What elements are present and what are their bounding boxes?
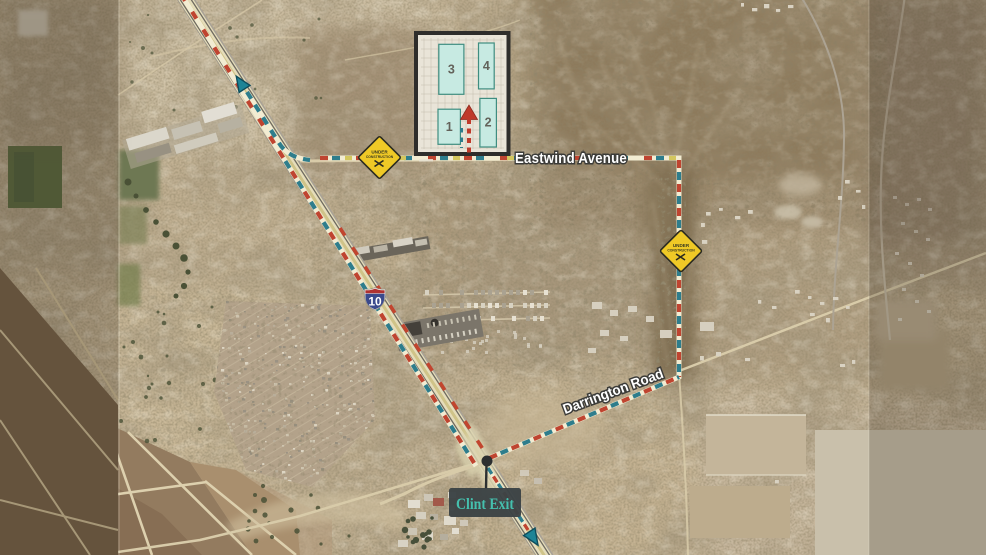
svg-text:UNDER: UNDER: [371, 149, 388, 154]
svg-text:2: 2: [485, 116, 492, 130]
svg-text:CONSTRUCTION: CONSTRUCTION: [667, 249, 695, 253]
svg-text:3: 3: [448, 62, 455, 76]
svg-text:10: 10: [368, 295, 382, 309]
svg-text:CONSTRUCTION: CONSTRUCTION: [366, 155, 394, 159]
svg-text:UNDER: UNDER: [673, 243, 690, 248]
svg-text:Eastwind Avenue: Eastwind Avenue: [515, 150, 627, 167]
svg-text:1: 1: [446, 120, 453, 134]
svg-text:4: 4: [483, 59, 490, 73]
svg-text:Clint Exit: Clint Exit: [456, 496, 515, 513]
